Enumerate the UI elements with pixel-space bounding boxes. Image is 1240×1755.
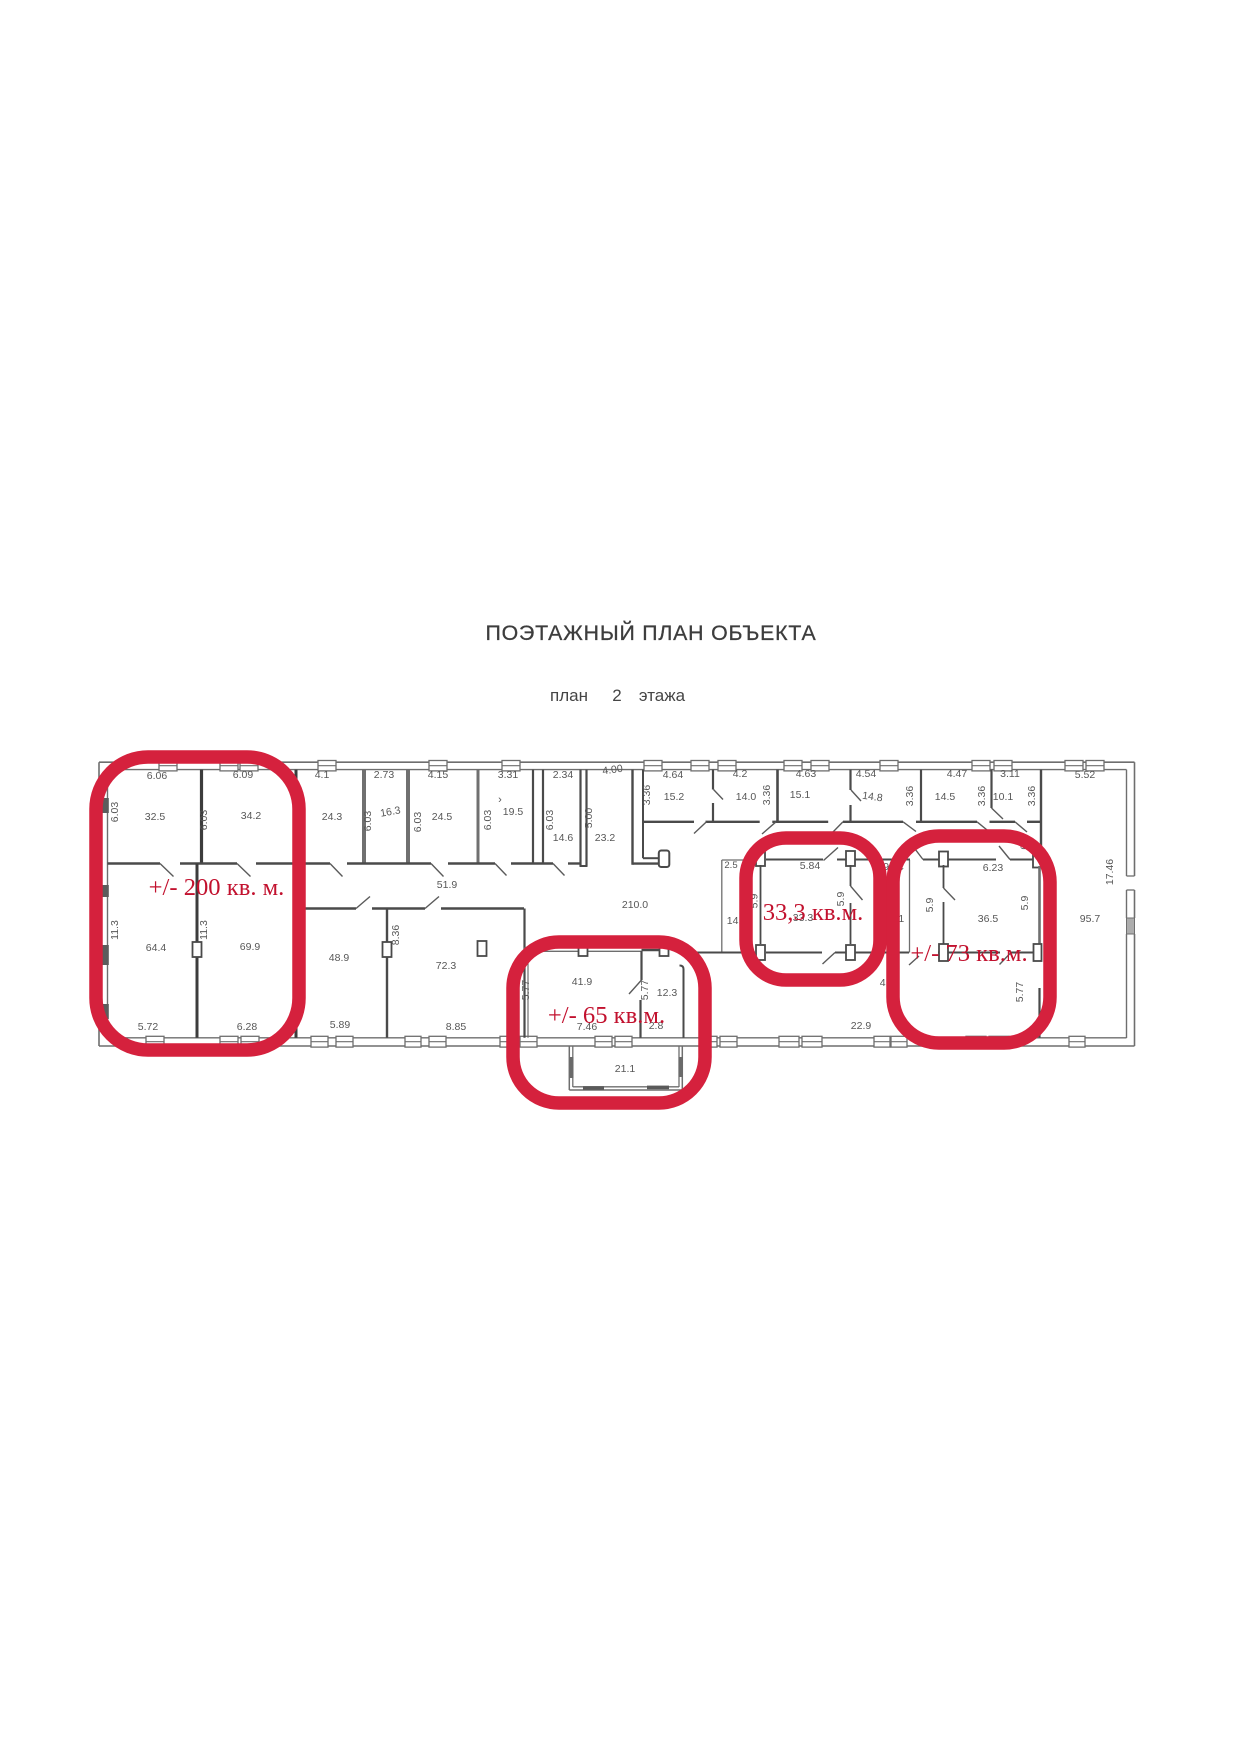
svg-text:8.85: 8.85 [446,1021,467,1033]
svg-text:4.1: 4.1 [315,769,330,781]
svg-text:6.03: 6.03 [109,802,121,823]
svg-text:6.23: 6.23 [983,862,1004,874]
svg-text:6.28: 6.28 [237,1021,258,1033]
svg-text:5.9: 5.9 [1019,896,1031,911]
svg-text:4.63: 4.63 [796,768,817,780]
svg-text:5.72: 5.72 [138,1021,159,1033]
svg-text:4.2: 4.2 [733,768,748,780]
svg-text:6.03: 6.03 [362,811,374,832]
svg-text:5.89: 5.89 [330,1019,351,1031]
svg-text:17.46: 17.46 [1104,859,1116,885]
svg-text:2: 2 [612,686,621,705]
svg-text:21.1: 21.1 [615,1063,636,1075]
svg-text:24.3: 24.3 [322,811,343,823]
svg-text:10.1: 10.1 [993,791,1014,803]
svg-text:11.3: 11.3 [109,920,121,940]
svg-text:12.3: 12.3 [657,987,678,999]
svg-text:4.64: 4.64 [663,769,684,781]
svg-text:5.52: 5.52 [1075,769,1096,781]
svg-text:3.36: 3.36 [641,785,653,806]
svg-text:32.5: 32.5 [145,811,166,823]
svg-text:5.77: 5.77 [1014,982,1026,1003]
svg-text:2.73: 2.73 [374,769,395,781]
svg-text:6.03: 6.03 [482,810,494,831]
svg-text:›: › [498,794,502,806]
svg-text:5.9: 5.9 [924,898,936,913]
svg-text:3.11: 3.11 [1000,768,1020,780]
svg-text:6.03: 6.03 [412,812,424,833]
svg-text:48.9: 48.9 [329,952,350,964]
svg-text:51.9: 51.9 [437,879,458,891]
svg-text:24.5: 24.5 [432,811,453,823]
svg-text:4.15: 4.15 [428,769,449,781]
svg-text:4.47: 4.47 [947,768,968,780]
svg-text:3.36: 3.36 [904,786,916,807]
svg-text:3.31: 3.31 [498,769,519,781]
svg-text:5.00: 5.00 [583,808,595,829]
svg-text:15.2: 15.2 [664,791,685,803]
svg-text:5.77: 5.77 [520,980,532,1001]
svg-text:11.3: 11.3 [198,920,210,940]
svg-text:+/- 65 кв.м.: +/- 65 кв.м. [548,1002,665,1029]
svg-text:14.5: 14.5 [935,791,956,803]
svg-text:6.03: 6.03 [544,810,556,831]
svg-text:6.06: 6.06 [147,770,168,782]
svg-text:5.77: 5.77 [639,980,651,1001]
svg-text:69.9: 69.9 [240,941,261,953]
svg-text:22.9: 22.9 [851,1020,872,1032]
svg-text:6.03: 6.03 [198,810,210,831]
svg-text:5.84: 5.84 [800,860,821,872]
svg-text:41.9: 41.9 [572,976,593,988]
svg-text:+/- 73 кв.м.: +/- 73 кв.м. [910,940,1027,967]
svg-text:34.2: 34.2 [241,810,262,822]
svg-text:6.09: 6.09 [233,769,254,781]
svg-text:19.5: 19.5 [503,806,524,818]
svg-text:95.7: 95.7 [1080,913,1101,925]
svg-text:8.36: 8.36 [390,925,402,946]
svg-text:2.5: 2.5 [724,860,737,871]
svg-text:ПОЭТАЖНЫЙ ПЛАН ОБЪЕКТА: ПОЭТАЖНЫЙ ПЛАН ОБЪЕКТА [485,620,816,645]
svg-text:15.1: 15.1 [790,789,811,801]
svg-text:этажа: этажа [639,686,686,705]
svg-text:64.4: 64.4 [146,942,167,954]
svg-text:72.3: 72.3 [436,960,457,972]
svg-text:210.0: 210.0 [622,899,648,911]
svg-text:+/- 200 кв. м.: +/- 200 кв. м. [149,874,285,901]
svg-text:14.6: 14.6 [553,832,574,844]
svg-text:33,3 кв.м.: 33,3 кв.м. [763,899,864,926]
svg-text:36.5: 36.5 [978,913,999,925]
svg-text:3.36: 3.36 [761,785,773,806]
svg-text:23.2: 23.2 [595,832,616,844]
svg-text:3.36: 3.36 [1026,786,1038,807]
svg-text:14.0: 14.0 [736,791,757,803]
svg-text:4.54: 4.54 [856,768,877,780]
svg-text:2.34: 2.34 [553,769,574,781]
svg-text:3.36: 3.36 [976,786,988,807]
svg-text:план: план [550,686,588,705]
